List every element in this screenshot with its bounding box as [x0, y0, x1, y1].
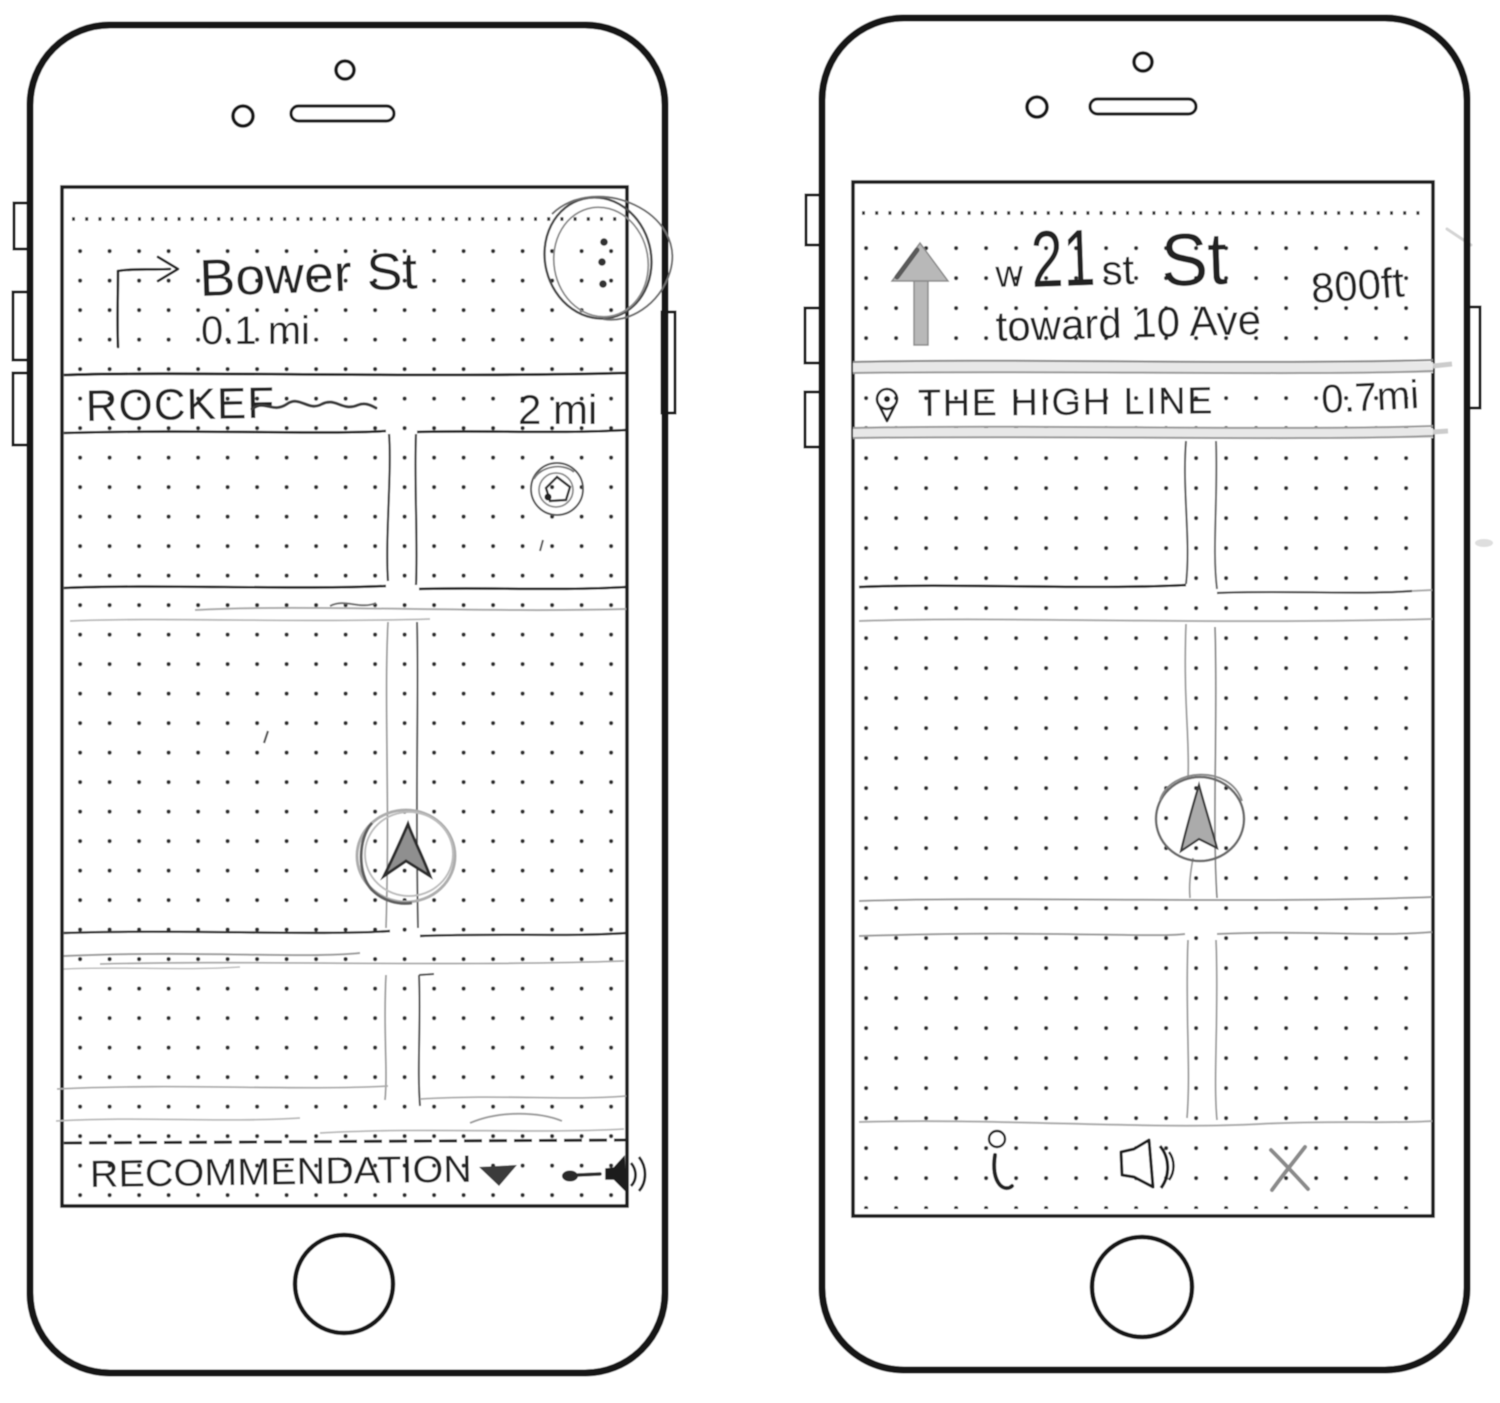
svg-text:RECOMMENDATION: RECOMMENDATION [90, 1149, 473, 1196]
svg-text:0.1 mi: 0.1 mi [201, 309, 310, 353]
svg-text:St: St [1160, 217, 1229, 302]
svg-text:st: st [1101, 246, 1136, 294]
svg-text:800ft: 800ft [1309, 259, 1406, 312]
svg-text:toward 10 Ave: toward 10 Ave [995, 296, 1262, 350]
svg-text:THE HIGH LINE: THE HIGH LINE [918, 380, 1214, 425]
svg-text:Bower St: Bower St [198, 242, 418, 308]
svg-text:w: w [994, 253, 1024, 296]
svg-text:0.7mi: 0.7mi [1320, 373, 1420, 422]
svg-text:21: 21 [1029, 213, 1096, 304]
svg-text:2 mi: 2 mi [518, 386, 597, 433]
svg-text:ROCKEF: ROCKEF [85, 379, 275, 431]
